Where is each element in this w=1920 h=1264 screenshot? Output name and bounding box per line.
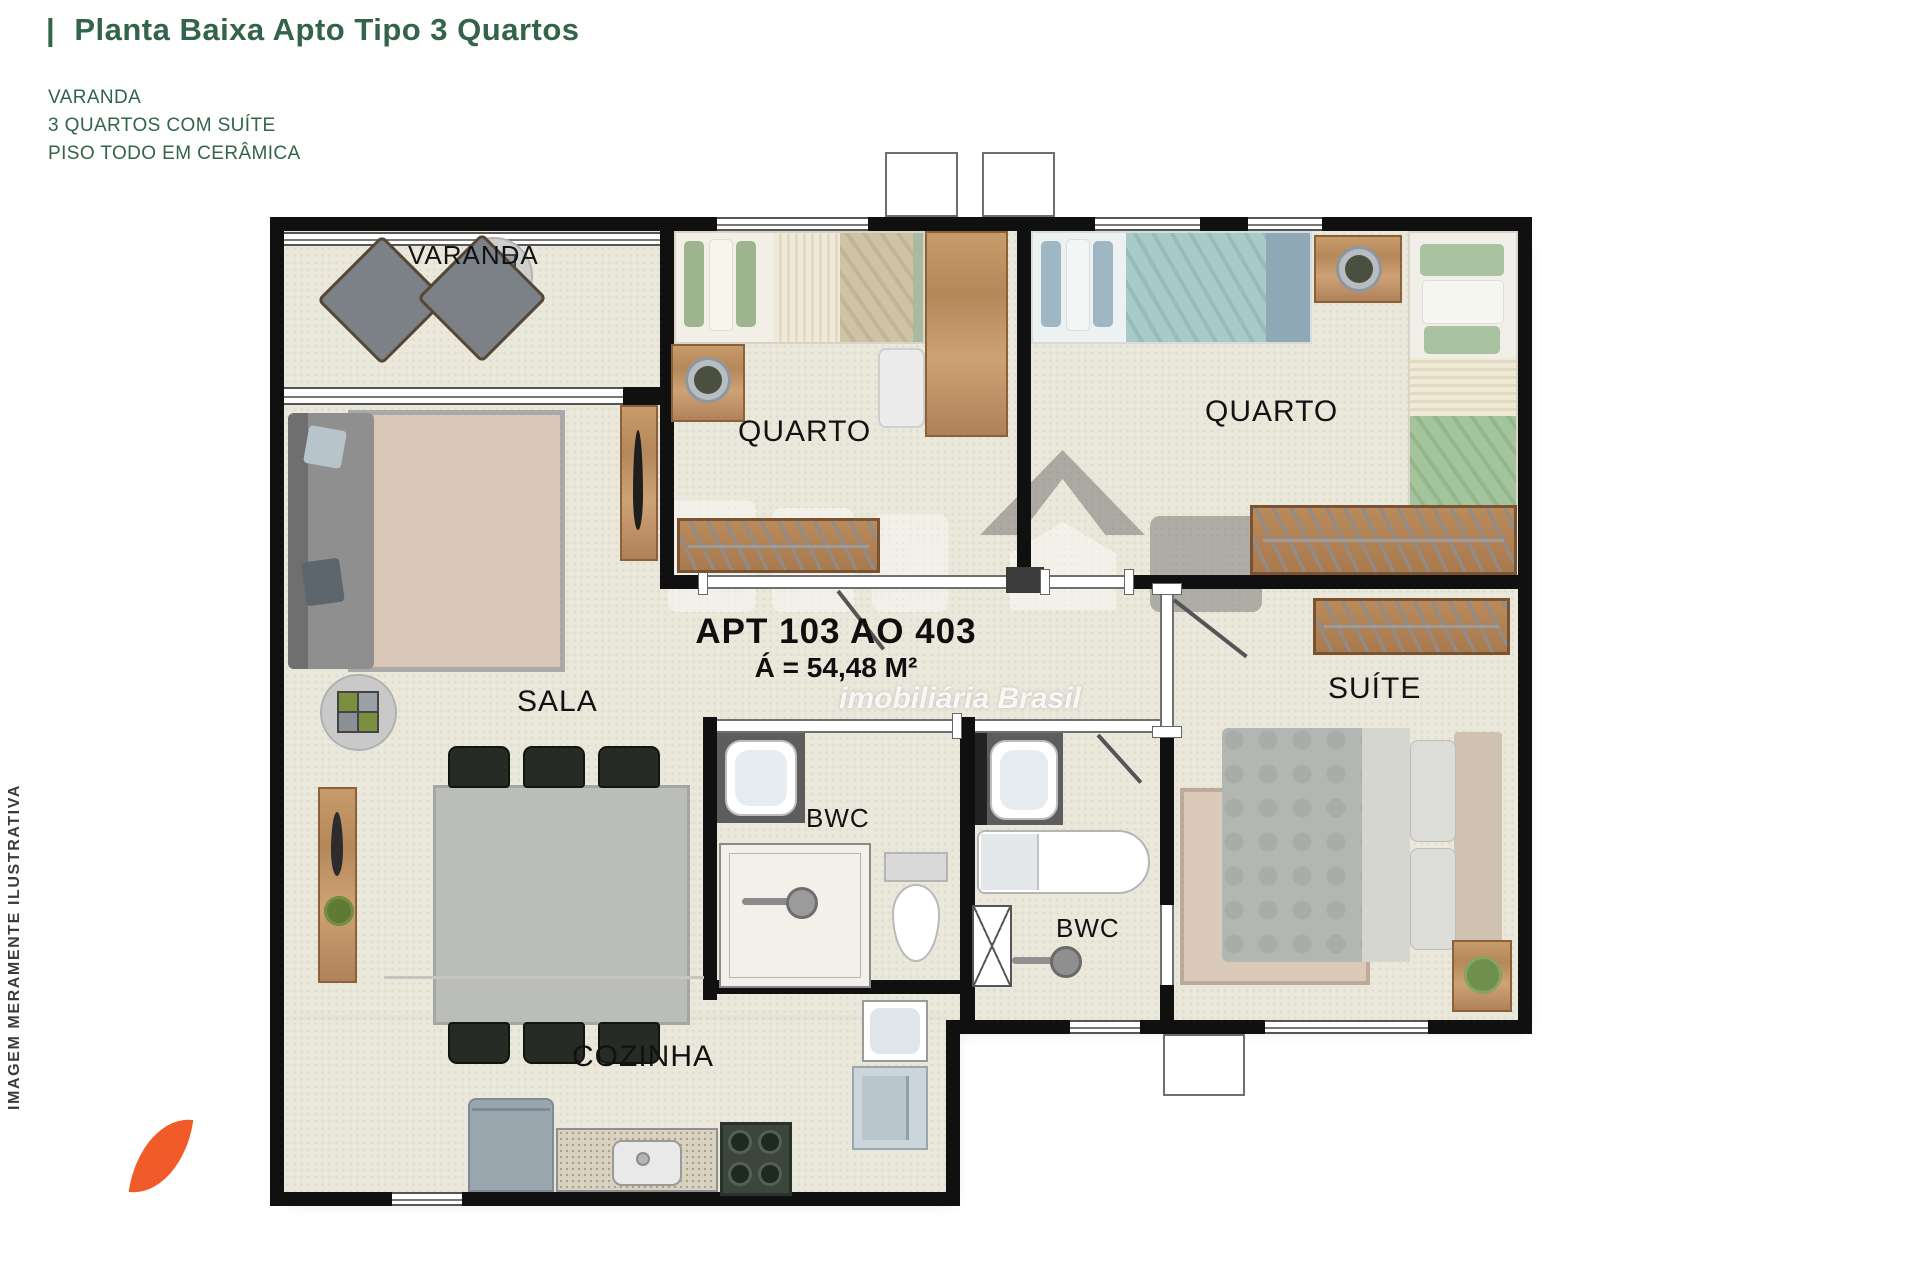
bed-quilt [1126, 233, 1266, 342]
wall-top [270, 217, 1532, 231]
window-suite [1265, 1020, 1428, 1034]
door-entry-kitchen [392, 1192, 462, 1206]
door-jamb [952, 713, 962, 739]
door-band-bwc2 [975, 719, 1160, 733]
bed-pillow [1066, 239, 1090, 331]
quarto1-wardrobe [925, 231, 1008, 437]
door-band-quarto1 [706, 575, 1006, 589]
room-label-suite: SUÍTE [1328, 672, 1421, 706]
shaft-box [885, 152, 958, 217]
room-label-cozinha: COZINHA [572, 1040, 714, 1074]
wall-connector [946, 1020, 960, 1206]
wall-right [1518, 217, 1532, 1034]
bed-pillow [1041, 241, 1061, 327]
room-label-quarto2: QUARTO [1205, 395, 1338, 429]
nightstand-clock-face [1345, 255, 1373, 283]
quarto1-closet [677, 518, 880, 573]
dining-chair [448, 746, 510, 788]
stove-burner [728, 1130, 752, 1154]
bwc2-shaft [972, 905, 1012, 987]
door-band-suite [1160, 589, 1174, 735]
apartment-id: APT 103 AO 403 [660, 612, 1012, 652]
bwc1-sink-basin [735, 750, 787, 806]
wall-left [270, 217, 284, 1206]
bed-pillow [1093, 241, 1113, 327]
wall-bottom-left [270, 1192, 960, 1206]
dining-table [433, 785, 690, 1025]
wall-suite-left-lower [1160, 985, 1174, 1020]
shaft-box [1163, 1034, 1245, 1096]
bed-blanket [840, 233, 923, 342]
watermark-tagline: imobiliária Brasil [770, 682, 1150, 716]
shower-head [786, 887, 818, 919]
suite-pillow [1410, 740, 1456, 842]
bed-pillow [1420, 244, 1504, 276]
suite-bed-sheet [1362, 728, 1410, 962]
room-label-sala: SALA [517, 685, 598, 719]
suite-closet [1313, 598, 1510, 655]
sofa-pillow [301, 558, 345, 607]
room-label-quarto1: QUARTO [738, 415, 871, 449]
washing-machine-door [862, 1076, 909, 1140]
stove-burner [728, 1162, 752, 1186]
bwc2-sink-basin [1000, 750, 1048, 810]
wall-bwc1-left [703, 717, 717, 1000]
wall-nub [1006, 567, 1044, 593]
kitchen-fridge [468, 1098, 554, 1192]
wall-bottom-right [946, 1020, 1532, 1034]
suite-pillow [1410, 848, 1456, 950]
laundry-tub-basin [870, 1008, 920, 1054]
dining-chair [598, 746, 660, 788]
door-band-quarto2 [1044, 575, 1130, 589]
sofa-pillow [303, 425, 347, 469]
kitchen-fridge-line [472, 1108, 550, 1111]
bed-pillow [709, 239, 733, 331]
bed-quilt-fold [1266, 233, 1310, 342]
bed-sheet [774, 233, 840, 342]
floor-plan: imobiliária Brasil [0, 0, 1920, 1264]
wall-suite-left-upper [1160, 735, 1174, 905]
window-quarto1 [717, 217, 868, 231]
bed-pillow [1422, 280, 1504, 324]
bwc2-bathtub-ledge [981, 834, 1039, 890]
door-jamb [1124, 569, 1134, 595]
window-quarto2-b [1248, 217, 1322, 231]
window-varanda-sala [284, 387, 623, 405]
wall-quarto-divider [1017, 231, 1031, 577]
bed-sheet [1410, 358, 1516, 416]
room-label-varanda: VARANDA [408, 240, 539, 271]
dining-chair [448, 1022, 510, 1064]
shaft-box [982, 152, 1055, 217]
bed-pillow [1424, 326, 1500, 354]
room-label-bwc1: BWC [806, 803, 870, 834]
window-quarto2-a [1095, 217, 1200, 231]
bed-blanket-edge [913, 233, 923, 342]
stove-burner [758, 1130, 782, 1154]
sala-planter [337, 691, 379, 733]
door-band-bwc2-side [1160, 905, 1174, 985]
apartment-area: Á = 54,48 M² [660, 652, 1012, 684]
nightstand-clock-face [694, 366, 722, 394]
suite-plant [1464, 956, 1502, 994]
bed-blanket [1410, 416, 1516, 508]
stove-burner [758, 1162, 782, 1186]
dining-chair [523, 746, 585, 788]
kitchen-boundary-line [384, 976, 704, 979]
bed-pillow [736, 241, 756, 327]
wall-stub-varanda [623, 387, 660, 405]
bed-pillow [684, 241, 704, 327]
wall-quarto2-suite [1130, 575, 1518, 589]
sala-rug [348, 410, 565, 672]
door-jamb [1040, 569, 1050, 595]
suite-headboard [1454, 732, 1502, 960]
quarto1-desk-chair [878, 348, 925, 428]
door-band-bwc1 [717, 719, 960, 733]
shower-head [1050, 946, 1082, 978]
watermark-letter-block [872, 514, 948, 612]
bwc1-toilet-tank [884, 852, 948, 882]
door-jamb [1152, 583, 1182, 595]
room-label-bwc2: BWC [1056, 913, 1120, 944]
kitchen-sink-drain [636, 1152, 650, 1166]
suite-bed-quilt [1222, 728, 1362, 962]
quarto2-closet [1250, 505, 1517, 575]
console-plant [324, 896, 354, 926]
door-jamb [1152, 726, 1182, 738]
window-bwc2 [1070, 1020, 1140, 1034]
